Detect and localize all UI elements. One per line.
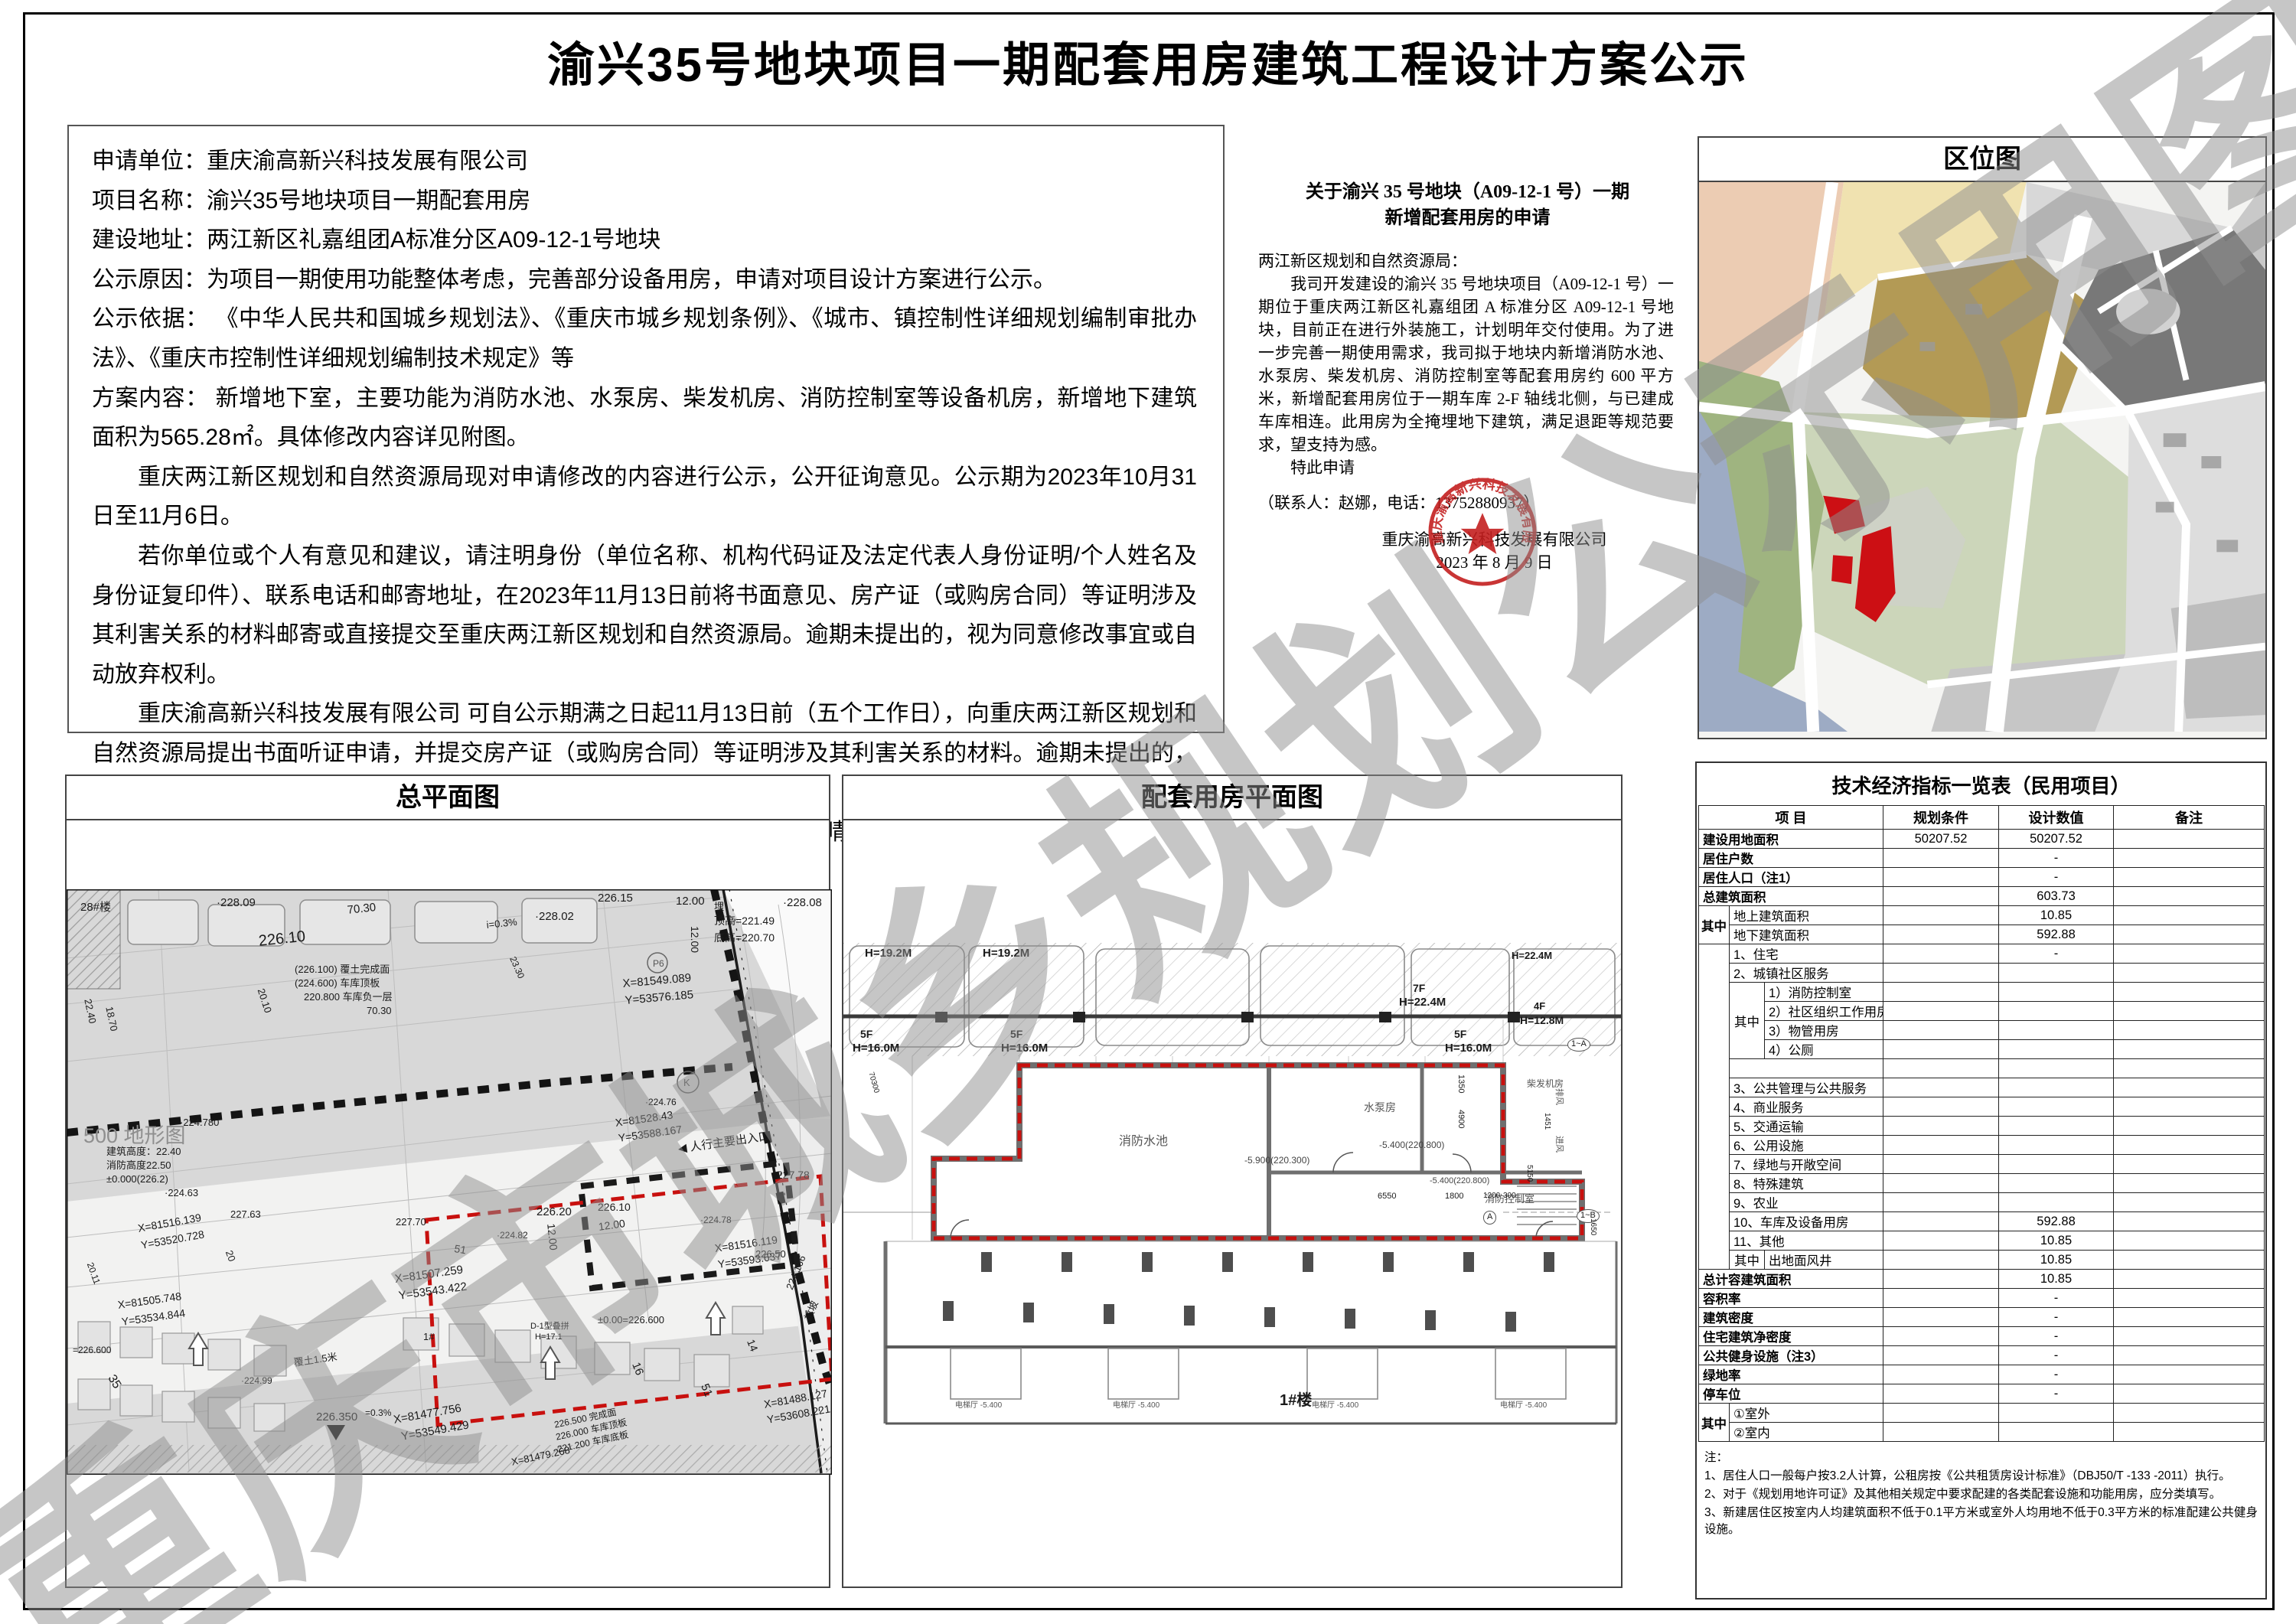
table-header: 项 目 bbox=[1699, 806, 1883, 830]
site-plan-label: ·224.63 bbox=[165, 1188, 198, 1198]
letter-title-line2: 新增配套用房的申请 bbox=[1247, 205, 1688, 231]
table-cell: 建筑密度 bbox=[1699, 1308, 1883, 1327]
table-cell bbox=[2114, 1251, 2265, 1270]
table-cell bbox=[1999, 964, 2114, 983]
site-plan-label: 70.30 bbox=[367, 1006, 392, 1016]
site-plan-label: 220.800 车库负一层 bbox=[304, 992, 393, 1003]
site-plan-label: ±0.000(226.2) bbox=[106, 1174, 168, 1185]
site-plan-label: 消防高度22.50 bbox=[106, 1160, 171, 1171]
table-cell bbox=[2114, 1193, 2265, 1212]
floor-plan-label: 1~A bbox=[1567, 1038, 1590, 1052]
location-map-title: 区位图 bbox=[1699, 138, 2265, 182]
floor-plan-label: 电梯厅 -5.400 bbox=[1113, 1402, 1159, 1410]
floor-plan-label: 水泵房 bbox=[1364, 1102, 1396, 1114]
public-notice-page: 渝兴35号地块项目一期配套用房建筑工程设计方案公示 申请单位：重庆渝高新兴科技发… bbox=[0, 0, 2296, 1624]
table-cell bbox=[1883, 849, 1999, 868]
floor-plan-label: A bbox=[1483, 1211, 1496, 1225]
letter-body: 两江新区规划和自然资源局： 我司开发建设的渝兴 35 号地块项目（A09-12-… bbox=[1247, 249, 1688, 479]
table-cell bbox=[2114, 1231, 2265, 1251]
floor-plan-label: -5.400(220.800) bbox=[1379, 1140, 1444, 1150]
floor-plan-label: 电梯厅 -5.400 bbox=[955, 1402, 1002, 1410]
floor-plan-label: 5F bbox=[1454, 1029, 1466, 1040]
table-cell: 公共健身设施（注3） bbox=[1699, 1346, 1883, 1365]
info-line: 若你单位或个人有意见和建议，请注明身份（单位名称、机构代码证及法定代表人身份证明… bbox=[92, 536, 1197, 694]
table-cell bbox=[1883, 1136, 1999, 1155]
info-line: 项目名称：渝兴35号地块项目一期配套用房 bbox=[92, 181, 1197, 221]
table-header: 规划条件 bbox=[1883, 806, 1999, 830]
site-plan-graphic: K P6 bbox=[67, 889, 832, 1475]
table-cell bbox=[1999, 1002, 2114, 1021]
table-cell: 50207.52 bbox=[1883, 830, 1999, 849]
table-cell bbox=[2114, 830, 2265, 849]
location-map-graphic bbox=[1699, 182, 2265, 738]
floor-plan-label: 消防水池 bbox=[1119, 1136, 1168, 1149]
table-cell: 2、城镇社区服务 bbox=[1730, 964, 1883, 983]
site-plan-label: =226.600 bbox=[73, 1345, 111, 1355]
table-cell: 603.73 bbox=[1999, 887, 2114, 906]
table-cell bbox=[1883, 1308, 1999, 1327]
site-plan-label: 227.70 bbox=[396, 1217, 426, 1228]
site-plan-label: 1# bbox=[423, 1332, 434, 1342]
floor-plan-label: H=16.0M bbox=[1001, 1042, 1048, 1055]
table-cell bbox=[1883, 1021, 1999, 1040]
floor-plan-label: 1200 bbox=[1483, 1192, 1500, 1201]
table-cell: 其中 bbox=[1730, 983, 1765, 1059]
site-plan-label: =0.3% bbox=[365, 1408, 391, 1418]
table-cell: 10.85 bbox=[1999, 1270, 2114, 1289]
table-cell: 2）社区组织工作用房 bbox=[1765, 1002, 1883, 1021]
table-cell: 9、农业 bbox=[1730, 1193, 1883, 1212]
table-cell bbox=[2114, 1174, 2265, 1193]
indicator-table-title: 技术经济指标一览表（民用项目） bbox=[1698, 771, 2264, 799]
floor-plan-label: 1800 bbox=[1445, 1192, 1463, 1202]
floor-plan-label: 300 bbox=[1503, 1192, 1516, 1201]
table-cell bbox=[2114, 887, 2265, 906]
site-plan-drawing: K P6 28#楼·228.0970.30i=0.3%·228.02226.15… bbox=[67, 889, 832, 1475]
site-plan-label: 226.15 bbox=[598, 892, 633, 905]
table-cell bbox=[2114, 1327, 2265, 1346]
letter-paragraph: 我司开发建设的渝兴 35 号地块项目（A09-12-1 号）一期位于重庆两江新区… bbox=[1258, 272, 1674, 456]
table-cell bbox=[1883, 887, 1999, 906]
table-cell bbox=[1883, 1097, 1999, 1117]
indicator-table: 项 目规划条件设计数值备注 建设用地面积50207.5250207.52居住户数… bbox=[1698, 805, 2265, 1442]
table-cell bbox=[2114, 1308, 2265, 1327]
table-cell: - bbox=[1999, 1346, 2114, 1365]
floor-plan-label: 7F bbox=[1413, 983, 1425, 994]
notice-info-box: 申请单位：重庆渝高新兴科技发展有限公司项目名称：渝兴35号地块项目一期配套用房建… bbox=[67, 125, 1225, 733]
table-cell bbox=[1999, 1423, 2114, 1442]
info-line: 申请单位：重庆渝高新兴科技发展有限公司 bbox=[92, 142, 1197, 181]
info-line: 方案内容： 新增地下室，主要功能为消防水池、水泵房、柴发机房、消防控制室等设备机… bbox=[92, 379, 1197, 458]
table-cell bbox=[1883, 1002, 1999, 1021]
floor-plan-label: 1451 bbox=[1543, 1113, 1551, 1130]
table-cell bbox=[2114, 1136, 2265, 1155]
table-cell bbox=[1999, 1040, 2114, 1059]
floor-plan-title: 配套用房平面图 bbox=[843, 776, 1621, 820]
table-cell bbox=[1883, 944, 1999, 964]
site-plan-label: ·224.82 bbox=[497, 1231, 528, 1241]
site-plan-label: ·224.78 bbox=[700, 1215, 732, 1225]
table-cell bbox=[2114, 1289, 2265, 1308]
table-cell bbox=[1883, 1384, 1999, 1404]
table-cell bbox=[1883, 1251, 1999, 1270]
floor-plan-drawing: H=19.2MH=19.2MH=22.4M7FH=22.4M4FH=12.8M5… bbox=[843, 943, 1621, 1433]
table-cell bbox=[1883, 1059, 1999, 1078]
floor-plan-label: 5150 bbox=[1525, 1165, 1534, 1182]
seal-star-icon bbox=[1461, 513, 1505, 554]
table-cell: 4）公厕 bbox=[1765, 1040, 1883, 1059]
table-cell: 出地面风井 bbox=[1765, 1251, 1883, 1270]
table-cell: 建设用地面积 bbox=[1699, 830, 1883, 849]
table-cell bbox=[2114, 1002, 2265, 1021]
site-plan-label: (224.600) 车库顶板 bbox=[295, 978, 380, 989]
site-plan-label: 226.350 bbox=[316, 1411, 357, 1423]
site-plan-label: 51 bbox=[453, 1243, 467, 1256]
table-cell: 停车位 bbox=[1699, 1384, 1883, 1404]
floor-plan-label: 电梯厅 -5.400 bbox=[1500, 1402, 1547, 1410]
table-cell bbox=[1999, 1117, 2114, 1136]
company-seal-icon: 重庆渝高新兴科技发展有限公司 bbox=[1425, 474, 1540, 589]
red-parcel-small-2 bbox=[1831, 555, 1853, 584]
indicator-table-panel: 技术经济指标一览表（民用项目） 项 目规划条件设计数值备注 建设用地面积5020… bbox=[1695, 761, 2267, 1600]
table-cell bbox=[1999, 1136, 2114, 1155]
site-plan-label: ·224.99 bbox=[241, 1376, 272, 1386]
table-cell: 7、绿地与开敞空间 bbox=[1730, 1155, 1883, 1174]
table-cell: ①室外 bbox=[1730, 1404, 1883, 1423]
site-plan-label: 顶高=221.49 bbox=[714, 915, 775, 927]
table-cell bbox=[2114, 868, 2265, 887]
table-cell: ②室内 bbox=[1730, 1423, 1883, 1442]
floor-plan-label: 4900 bbox=[1456, 1110, 1465, 1128]
floor-plan-label: 1#楼 bbox=[1280, 1393, 1312, 1409]
site-plan-title: 总平面图 bbox=[67, 776, 829, 820]
table-cell bbox=[1699, 944, 1730, 1270]
table-cell: 10、车库及设备用房 bbox=[1730, 1212, 1883, 1231]
site-plan-label: 12.00 bbox=[689, 926, 700, 953]
letter-title-line1: 关于渝兴 35 号地块（A09-12-1 号）一期 bbox=[1247, 179, 1688, 205]
info-line: 公示原因：为项目一期使用功能整体考虑，完善部分设备用房，申请对项目设计方案进行公… bbox=[92, 260, 1197, 300]
table-cell: 8、特殊建筑 bbox=[1730, 1174, 1883, 1193]
table-cell: - bbox=[1999, 849, 2114, 868]
table-cell bbox=[2114, 944, 2265, 964]
floor-plan-graphic bbox=[843, 943, 1621, 1433]
table-cell: 总计容建筑面积 bbox=[1699, 1270, 1883, 1289]
floor-plan-label: -5.900(220.300) bbox=[1244, 1156, 1309, 1166]
table-note: 3、新建居住区按室内人均建筑面积不低于0.1平方米或室外人均用地不低于0.3平方… bbox=[1704, 1505, 2258, 1538]
table-cell bbox=[2114, 1097, 2265, 1117]
table-cell bbox=[2114, 1117, 2265, 1136]
table-note: 2、对于《规划用地许可证》及其他相关规定中要求配建的各类配套设施和功能用房，应分… bbox=[1704, 1486, 2258, 1503]
floor-plan-label: H=22.4M bbox=[1399, 996, 1446, 1009]
table-cell: 居住户数 bbox=[1699, 849, 1883, 868]
table-cell bbox=[1883, 1423, 1999, 1442]
table-cell: 10.85 bbox=[1999, 1251, 2114, 1270]
table-cell bbox=[1883, 1117, 1999, 1136]
table-cell bbox=[2114, 1078, 2265, 1097]
table-cell bbox=[2114, 849, 2265, 868]
site-plan-label: 12.00 bbox=[676, 895, 705, 908]
floor-plan-label: 1650 bbox=[1589, 1218, 1597, 1235]
floor-plan-label: 1350 bbox=[1456, 1075, 1465, 1093]
table-cell: 绿地率 bbox=[1699, 1365, 1883, 1384]
table-cell bbox=[2114, 1365, 2265, 1384]
table-header: 设计数值 bbox=[1999, 806, 2114, 830]
table-cell bbox=[1883, 1078, 1999, 1097]
floor-plan-label: 电梯厅 -5.400 bbox=[1312, 1402, 1358, 1410]
table-cell: 592.88 bbox=[1999, 1212, 2114, 1231]
site-plan-label: 226.20 bbox=[536, 1206, 572, 1218]
floor-plan-label: 5F bbox=[1010, 1029, 1022, 1040]
table-cell bbox=[2114, 906, 2265, 925]
table-cell bbox=[2114, 1155, 2265, 1174]
table-cell bbox=[2114, 925, 2265, 944]
table-cell bbox=[1883, 1212, 1999, 1231]
info-line: 公示依据： 《中华人民共和国城乡规划法》、《重庆市城乡规划条例》、《城市、镇控制… bbox=[92, 299, 1197, 378]
site-plan-label: ·228.09 bbox=[217, 897, 256, 909]
site-plan-label: D-1型叠拼 bbox=[530, 1322, 569, 1332]
table-cell: 10.85 bbox=[1999, 906, 2114, 925]
site-plan-label: 500 地形图 bbox=[83, 1125, 186, 1146]
table-cell bbox=[1999, 1193, 2114, 1212]
table-cell: 5、交通运输 bbox=[1730, 1117, 1883, 1136]
table-cell: 3）物管用房 bbox=[1765, 1021, 1883, 1040]
table-header: 备注 bbox=[2114, 806, 2265, 830]
table-cell bbox=[1883, 868, 1999, 887]
table-cell bbox=[2114, 1270, 2265, 1289]
table-cell bbox=[1999, 1174, 2114, 1193]
table-cell: - bbox=[1999, 1365, 2114, 1384]
site-plan-label: 建筑高度：22.40 bbox=[106, 1146, 181, 1157]
table-cell: - bbox=[1999, 944, 2114, 964]
site-plan-label: ·228.02 bbox=[535, 911, 574, 923]
table-cell bbox=[1883, 1289, 1999, 1308]
site-plan-label: 28#楼 bbox=[80, 902, 111, 914]
table-cell bbox=[1730, 1059, 1883, 1078]
indicator-table-notes: 注：1、居住人口一般每户按3.2人计算，公租房按《公共租赁房设计标准》（DBJ5… bbox=[1698, 1450, 2264, 1538]
table-cell: 6、公用设施 bbox=[1730, 1136, 1883, 1155]
table-cell: 住宅建筑净密度 bbox=[1699, 1327, 1883, 1346]
table-cell: 地上建筑面积 bbox=[1730, 906, 1883, 925]
location-map-panel: 区位图 bbox=[1698, 136, 2267, 739]
table-cell: - bbox=[1999, 1327, 2114, 1346]
table-cell bbox=[2114, 983, 2265, 1002]
table-cell bbox=[1999, 1155, 2114, 1174]
site-plan-label: 埋 bbox=[714, 902, 724, 912]
site-plan-label: (226.100) 覆土完成面 bbox=[295, 964, 390, 975]
site-plan-label: ·224.780 bbox=[180, 1117, 219, 1128]
table-cell bbox=[1999, 1021, 2114, 1040]
floor-plan-label: 4F bbox=[1534, 1001, 1545, 1012]
site-plan-label: 底高=220.70 bbox=[714, 932, 775, 944]
floor-plan-label: H=12.8M bbox=[1520, 1015, 1564, 1026]
table-cell: 10.85 bbox=[1999, 1231, 2114, 1251]
site-plan-label: 12.00 bbox=[545, 1223, 559, 1251]
table-cell: 3、公共管理与公共服务 bbox=[1730, 1078, 1883, 1097]
site-plan-label: ±0.00=226.600 bbox=[598, 1315, 664, 1326]
table-cell: 居住人口（注1） bbox=[1699, 868, 1883, 887]
svg-text:K: K bbox=[683, 1077, 690, 1088]
table-cell: - bbox=[1999, 1384, 2114, 1404]
table-cell bbox=[2114, 1212, 2265, 1231]
table-cell bbox=[1883, 1155, 1999, 1174]
table-cell bbox=[1883, 964, 1999, 983]
table-cell: - bbox=[1999, 1308, 2114, 1327]
table-cell: - bbox=[1999, 868, 2114, 887]
table-cell bbox=[1883, 906, 1999, 925]
table-cell: 1）消防控制室 bbox=[1765, 983, 1883, 1002]
table-cell bbox=[2114, 1059, 2265, 1078]
site-plan-label: ·228.08 bbox=[783, 897, 822, 909]
table-cell: 容积率 bbox=[1699, 1289, 1883, 1308]
table-cell bbox=[2114, 1346, 2265, 1365]
floor-plan-label: H=19.2M bbox=[983, 947, 1029, 960]
table-cell: - bbox=[1999, 1289, 2114, 1308]
table-cell bbox=[1883, 1404, 1999, 1423]
floor-plan-label: H=22.4M bbox=[1512, 951, 1552, 961]
site-plan-label: H=17.1 bbox=[535, 1333, 563, 1342]
table-cell: 其中 bbox=[1699, 906, 1730, 944]
floor-plan-label: H=19.2M bbox=[865, 947, 912, 960]
table-cell bbox=[1883, 1193, 1999, 1212]
table-cell: 11、其他 bbox=[1730, 1231, 1883, 1251]
table-cell: 其中 bbox=[1699, 1404, 1730, 1442]
floor-plan-label: 柴发机房 bbox=[1527, 1079, 1564, 1089]
floor-plan-label: 5F bbox=[860, 1029, 872, 1040]
table-cell: 592.88 bbox=[1999, 925, 2114, 944]
letter-title: 关于渝兴 35 号地块（A09-12-1 号）一期 新增配套用房的申请 bbox=[1247, 129, 1688, 231]
site-plan-label: 227.78 bbox=[777, 1169, 810, 1181]
table-cell bbox=[1883, 1040, 1999, 1059]
table-cell bbox=[1883, 1270, 1999, 1289]
table-cell: 1、住宅 bbox=[1730, 944, 1883, 964]
floor-plan-label: 进风 bbox=[1554, 1136, 1563, 1153]
floor-plan-panel: 配套用房平面图 bbox=[842, 774, 1623, 1588]
table-cell bbox=[1999, 1097, 2114, 1117]
table-cell bbox=[1883, 983, 1999, 1002]
table-cell bbox=[2114, 1404, 2265, 1423]
table-cell bbox=[1883, 1231, 1999, 1251]
site-plan-label: 227.63 bbox=[230, 1209, 261, 1220]
table-cell bbox=[2114, 1384, 2265, 1404]
table-cell bbox=[2114, 1040, 2265, 1059]
table-cell: 其中 bbox=[1730, 1251, 1765, 1270]
floor-plan-label: H=16.0M bbox=[853, 1042, 899, 1055]
floor-plan-label: H=16.0M bbox=[1445, 1042, 1492, 1055]
floor-plan-label: -5.400(220.800) bbox=[1430, 1177, 1489, 1186]
table-cell bbox=[1883, 1365, 1999, 1384]
table-cell: 总建筑面积 bbox=[1699, 887, 1883, 906]
info-line: 建设地址：两江新区礼嘉组团A标准分区A09-12-1号地块 bbox=[92, 220, 1197, 260]
table-cell: 4、商业服务 bbox=[1730, 1097, 1883, 1117]
floor-plan-label: 排风 bbox=[1554, 1088, 1563, 1105]
table-cell bbox=[1883, 1174, 1999, 1193]
table-cell bbox=[1999, 1078, 2114, 1097]
floor-plan-label: 6550 bbox=[1378, 1192, 1396, 1202]
table-cell bbox=[2114, 964, 2265, 983]
table-note: 注： bbox=[1704, 1450, 2258, 1466]
table-cell bbox=[1883, 925, 1999, 944]
site-plan-label: ·224.76 bbox=[645, 1097, 677, 1107]
table-cell bbox=[1883, 1346, 1999, 1365]
table-cell bbox=[1999, 1404, 2114, 1423]
table-cell: 50207.52 bbox=[1999, 830, 2114, 849]
table-cell bbox=[2114, 1021, 2265, 1040]
table-cell bbox=[1883, 1327, 1999, 1346]
table-cell bbox=[2114, 1423, 2265, 1442]
site-plan-panel: 总平面图 bbox=[65, 774, 830, 1588]
table-cell bbox=[1999, 1059, 2114, 1078]
site-plan-label: 226.10 bbox=[598, 1202, 631, 1213]
svg-text:P6: P6 bbox=[653, 958, 664, 969]
info-line: 重庆两江新区规划和自然资源局现对申请修改的内容进行公示，公开征询意见。公示期为2… bbox=[92, 458, 1197, 536]
application-letter: 关于渝兴 35 号地块（A09-12-1 号）一期 新增配套用房的申请 两江新区… bbox=[1247, 129, 1688, 695]
site-plan-label: 226.50 bbox=[755, 1249, 786, 1260]
page-title: 渝兴35号地块项目一期配套用房建筑工程设计方案公示 bbox=[0, 26, 2296, 95]
letter-salutation: 两江新区规划和自然资源局： bbox=[1258, 249, 1674, 272]
table-note: 1、居住人口一般每户按3.2人计算，公租房按《公共租赁房设计标准》（DBJ50/… bbox=[1704, 1468, 2258, 1485]
table-cell: 地下建筑面积 bbox=[1730, 925, 1883, 944]
table-cell bbox=[1999, 983, 2114, 1002]
